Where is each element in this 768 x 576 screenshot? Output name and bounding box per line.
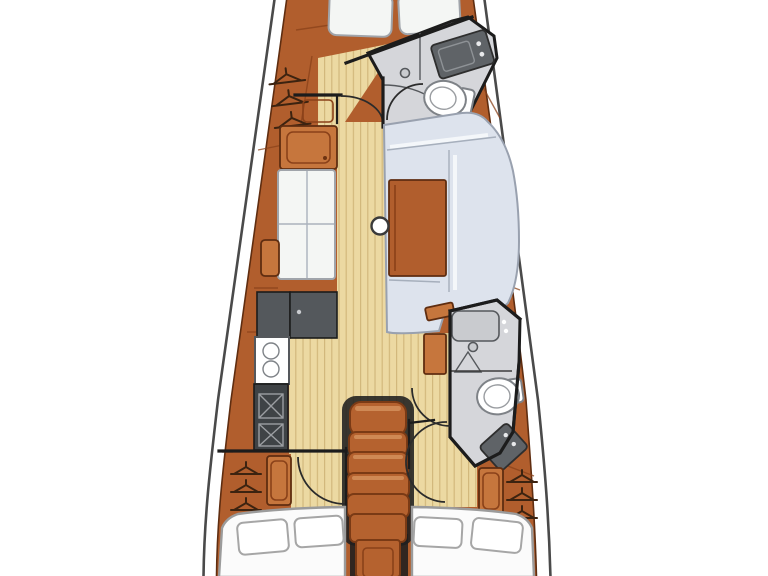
pillow [470, 517, 523, 553]
sink-basin-icon [254, 384, 288, 450]
shower-shelf [452, 311, 499, 341]
pillow [237, 519, 290, 555]
worktop-right [290, 292, 337, 338]
stairs-base [350, 514, 406, 542]
v-berth-cushion-left [328, 0, 392, 37]
yacht-floorplan [0, 0, 768, 576]
aft-head-cabinet [424, 334, 446, 374]
pillow [413, 517, 462, 548]
pillow [294, 515, 344, 547]
worktop-left [257, 292, 290, 338]
side-table [261, 240, 279, 276]
drain-icon-forward [401, 69, 410, 78]
stove-icon [255, 337, 289, 384]
saloon-table [389, 180, 446, 276]
port-settee [278, 170, 335, 279]
drain-icon-aft [469, 343, 478, 352]
floorplan-stage [0, 0, 768, 576]
companionway [342, 396, 414, 576]
mast-step-icon [372, 218, 389, 235]
companionway-steps [347, 402, 409, 576]
